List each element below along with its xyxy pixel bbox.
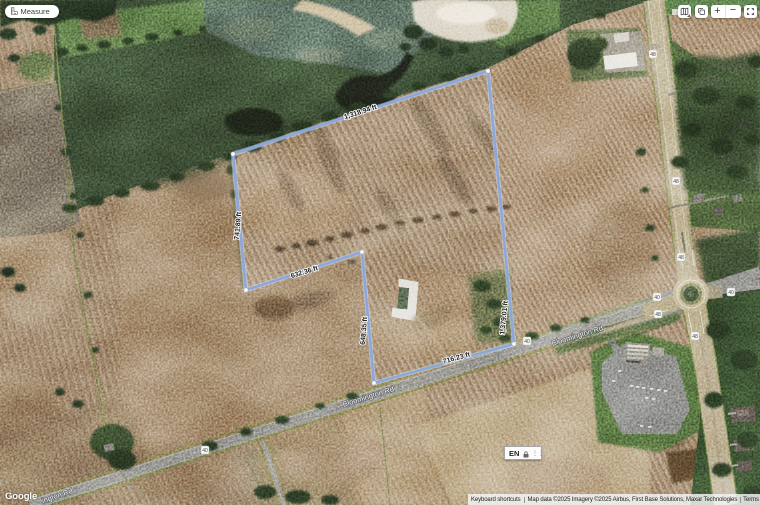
svg-text:40: 40 [728, 290, 734, 296]
svg-text:48: 48 [692, 334, 698, 340]
svg-text:48: 48 [650, 52, 656, 58]
svg-text:48: 48 [678, 255, 684, 261]
svg-text:40: 40 [524, 339, 530, 345]
svg-text:40: 40 [654, 295, 660, 301]
svg-text:48: 48 [673, 179, 679, 185]
svg-text:40: 40 [202, 448, 208, 454]
svg-text:48: 48 [655, 312, 661, 318]
